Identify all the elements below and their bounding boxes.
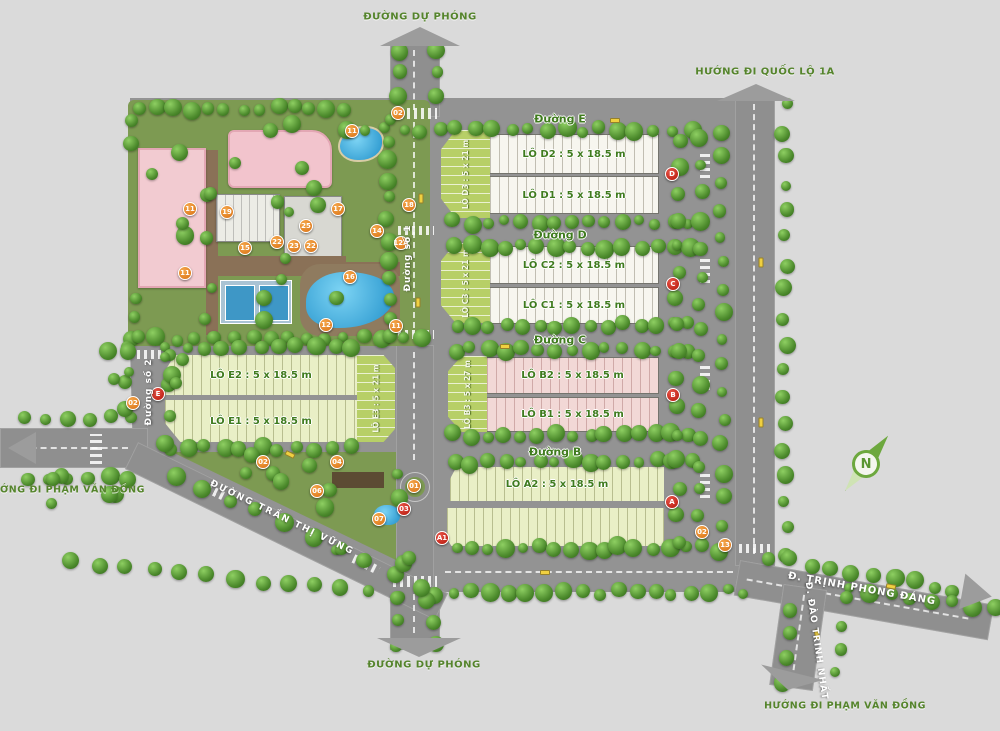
tree-icon xyxy=(118,375,132,389)
tree-icon xyxy=(398,332,409,343)
direction-label-bottom: ĐƯỜNG DỰ PHÓNG xyxy=(367,660,480,671)
tree-icon xyxy=(780,202,795,217)
tree-icon xyxy=(317,100,335,118)
tree-icon xyxy=(99,342,117,360)
block-label: LÔ A2 : 5 x 18.5 m xyxy=(450,467,664,501)
tree-icon xyxy=(635,241,650,256)
tree-icon xyxy=(507,124,519,136)
tree-icon xyxy=(775,390,790,405)
tree-icon xyxy=(778,229,790,241)
tree-icon xyxy=(715,465,733,483)
tree-icon xyxy=(946,595,958,607)
tree-icon xyxy=(774,443,790,459)
block-label: LÔ C3 : 5 x 21 m xyxy=(441,243,490,323)
tree-icon xyxy=(83,413,97,427)
tree-icon xyxy=(718,256,729,267)
car-icon xyxy=(610,118,620,123)
tree-icon xyxy=(648,317,664,333)
tree-icon xyxy=(697,272,708,283)
tree-icon xyxy=(835,643,848,656)
tree-icon xyxy=(329,291,344,306)
tree-icon xyxy=(146,168,158,180)
block-lo-e3: LÔ E3 : 5 x 21 m xyxy=(357,355,395,442)
tree-icon xyxy=(777,466,794,483)
map-marker-c[interactable]: C xyxy=(666,277,680,291)
tree-icon xyxy=(670,317,684,331)
map-marker-07[interactable]: 07 xyxy=(372,512,386,526)
compass: N xyxy=(815,413,916,514)
tree-icon xyxy=(256,576,271,591)
tree-icon xyxy=(176,217,189,230)
tree-icon xyxy=(576,584,590,598)
tree-icon xyxy=(684,586,699,601)
tree-icon xyxy=(463,583,479,599)
map-marker-18[interactable]: 18 xyxy=(402,198,416,212)
tree-icon xyxy=(402,551,416,565)
tree-icon xyxy=(567,431,577,441)
tree-icon xyxy=(101,467,120,486)
tree-icon xyxy=(822,561,838,577)
map-marker-17[interactable]: 17 xyxy=(331,202,345,216)
map-marker-02[interactable]: 02 xyxy=(126,396,140,410)
road-label-duong-e: Đường E xyxy=(534,113,586,126)
tree-icon xyxy=(428,88,443,103)
tree-icon xyxy=(452,320,465,333)
tree-icon xyxy=(271,195,284,208)
tree-icon xyxy=(117,559,132,574)
tree-icon xyxy=(635,319,649,333)
tree-icon xyxy=(183,343,193,353)
tree-icon xyxy=(615,315,629,329)
map-marker-22[interactable]: 22 xyxy=(304,239,318,253)
map-marker-11[interactable]: 11 xyxy=(178,266,192,280)
tree-icon xyxy=(480,453,495,468)
direction-label-top-right: HƯỚNG ĐI QUỐC LỘ 1A xyxy=(695,67,835,78)
block-lo-d1: LÔ D1 : 5 x 18.5 m xyxy=(490,177,658,213)
tree-icon xyxy=(778,416,793,431)
tree-icon xyxy=(805,559,819,573)
block-lo-d3: LÔ D3 : 5 x 21 m xyxy=(441,130,490,218)
map-marker-01[interactable]: 01 xyxy=(407,479,421,493)
tree-icon xyxy=(695,160,705,170)
block-label: LÔ B3 : 5 x 27 m xyxy=(448,356,487,432)
tree-icon xyxy=(782,521,794,533)
tree-icon xyxy=(198,342,211,355)
tree-icon xyxy=(481,321,494,334)
tree-icon xyxy=(634,457,644,467)
road-label-duong-c: Đường C xyxy=(534,334,586,347)
tree-icon xyxy=(461,456,478,473)
tree-icon xyxy=(171,564,187,580)
tree-icon xyxy=(866,568,881,583)
tree-icon xyxy=(783,603,797,617)
tree-icon xyxy=(276,274,287,285)
map-marker-12[interactable]: 12 xyxy=(319,318,333,332)
block-lo-b3: LÔ B3 : 5 x 27 m xyxy=(448,356,487,432)
site-plan-map: LÔ D2 : 5 x 18.5 mLÔ D1 : 5 x 18.5 mLÔ C… xyxy=(0,0,1000,731)
block-label: LÔ E1 : 5 x 18.5 m xyxy=(165,400,357,442)
tree-icon xyxy=(599,342,609,352)
tree-icon xyxy=(481,239,498,256)
tree-icon xyxy=(449,588,459,598)
tree-icon xyxy=(384,293,397,306)
tree-icon xyxy=(501,585,518,602)
tree-icon xyxy=(481,340,499,358)
tree-icon xyxy=(672,430,683,441)
tree-icon xyxy=(778,148,794,164)
tree-icon xyxy=(483,218,494,229)
tree-icon xyxy=(148,562,162,576)
tree-icon xyxy=(780,259,795,274)
tree-icon xyxy=(18,411,31,424)
tree-icon xyxy=(271,98,287,114)
tree-icon xyxy=(326,441,339,454)
map-marker-22[interactable]: 22 xyxy=(270,235,284,249)
tree-icon xyxy=(649,584,664,599)
map-marker-25[interactable]: 25 xyxy=(299,219,313,233)
map-marker-d[interactable]: D xyxy=(665,167,679,181)
tree-icon xyxy=(447,120,462,135)
map-marker-a[interactable]: A xyxy=(665,495,679,509)
road-quoc-lo-1a xyxy=(735,96,775,566)
tree-icon xyxy=(762,552,775,565)
block-label: LÔ B2 : 5 x 18.5 m xyxy=(487,358,658,393)
map-marker-03[interactable]: 03 xyxy=(397,502,411,516)
road-label-duong-so-2: Đường số 2 xyxy=(144,358,154,425)
tree-icon xyxy=(108,373,120,385)
tree-icon xyxy=(337,103,351,117)
tree-icon xyxy=(647,125,659,137)
tree-icon xyxy=(712,435,728,451)
tree-icon xyxy=(256,290,272,306)
tree-icon xyxy=(667,290,683,306)
tree-icon xyxy=(62,552,79,569)
direction-arrow-left-icon xyxy=(8,432,36,464)
block-label: LÔ D3 : 5 x 21 m xyxy=(441,130,490,218)
tree-icon xyxy=(665,589,677,601)
block-label: LÔ E2 : 5 x 18.5 m xyxy=(165,355,357,395)
tree-icon xyxy=(382,271,396,285)
tree-icon xyxy=(723,584,734,595)
tree-icon xyxy=(280,575,298,593)
tree-icon xyxy=(40,414,51,425)
tree-icon xyxy=(217,103,230,116)
tree-icon xyxy=(60,411,76,427)
map-marker-16[interactable]: 16 xyxy=(343,270,357,284)
tree-icon xyxy=(777,363,790,376)
block-lo-e1: LÔ E1 : 5 x 18.5 m xyxy=(165,400,357,442)
tree-icon xyxy=(738,589,748,599)
tree-icon xyxy=(532,538,547,553)
car-icon xyxy=(500,344,510,349)
map-marker-02[interactable]: 02 xyxy=(695,525,709,539)
map-marker-14[interactable]: 14 xyxy=(370,224,384,238)
tree-icon xyxy=(673,134,688,149)
car-icon xyxy=(759,258,764,268)
tree-icon xyxy=(357,329,371,343)
map-marker-23[interactable]: 23 xyxy=(287,239,301,253)
tree-icon xyxy=(199,313,211,325)
tree-icon xyxy=(595,426,611,442)
tree-icon xyxy=(781,550,798,567)
tree-icon xyxy=(255,311,273,329)
tree-icon xyxy=(516,584,534,602)
tree-icon xyxy=(226,570,245,589)
map-marker-04[interactable]: 04 xyxy=(330,455,344,469)
tree-icon xyxy=(776,313,789,326)
tree-icon xyxy=(180,439,198,457)
direction-arrow-up-icon xyxy=(380,27,460,46)
tree-icon xyxy=(695,184,710,199)
map-marker-02[interactable]: 02 xyxy=(256,455,270,469)
direction-arrow-up-icon xyxy=(717,84,795,101)
tree-icon xyxy=(378,150,397,169)
tree-icon xyxy=(384,191,395,202)
tree-icon xyxy=(649,219,660,230)
tree-icon xyxy=(691,509,704,522)
tree-icon xyxy=(307,337,325,355)
tree-icon xyxy=(202,102,215,115)
tree-icon xyxy=(775,279,792,296)
tree-icon xyxy=(380,252,398,270)
car-icon xyxy=(416,298,421,308)
tree-icon xyxy=(836,621,847,632)
tree-icon xyxy=(577,127,588,138)
block-lo-b2: LÔ B2 : 5 x 18.5 m xyxy=(487,358,658,393)
tree-icon xyxy=(596,455,611,470)
tree-icon xyxy=(413,579,430,596)
compass-north-label: N xyxy=(861,456,872,471)
tree-icon xyxy=(716,520,728,532)
block-label: LÔ B1 : 5 x 18.5 m xyxy=(487,398,658,431)
tree-icon xyxy=(535,584,553,602)
tree-icon xyxy=(518,543,528,553)
tree-icon xyxy=(172,335,183,346)
tree-icon xyxy=(717,334,727,344)
tree-icon xyxy=(671,213,687,229)
tree-icon xyxy=(432,66,444,78)
park-pavilion xyxy=(332,472,384,488)
tree-icon xyxy=(129,311,141,323)
map-marker-15[interactable]: 15 xyxy=(238,241,252,255)
tree-icon xyxy=(200,231,214,245)
tree-icon xyxy=(515,319,531,335)
map-marker-06[interactable]: 06 xyxy=(310,484,324,498)
tree-icon xyxy=(104,409,118,423)
tree-icon xyxy=(522,123,533,134)
tree-icon xyxy=(306,180,322,196)
tree-icon xyxy=(592,120,605,133)
tree-icon xyxy=(306,443,322,459)
tree-icon xyxy=(555,582,573,600)
tree-icon xyxy=(651,239,665,253)
map-marker-02[interactable]: 02 xyxy=(391,106,405,120)
tree-icon xyxy=(500,454,514,468)
direction-label-top: ĐƯỜNG DỰ PHÓNG xyxy=(363,12,476,23)
car-icon xyxy=(419,194,424,204)
tree-icon xyxy=(715,177,727,189)
tree-icon xyxy=(197,439,210,452)
tree-icon xyxy=(360,125,370,135)
tree-icon xyxy=(310,197,326,213)
tree-icon xyxy=(92,558,108,574)
tree-icon xyxy=(715,232,725,242)
tree-icon xyxy=(254,104,265,115)
tree-icon xyxy=(81,472,94,485)
tree-icon xyxy=(501,318,514,331)
tree-icon xyxy=(546,542,561,557)
tree-icon xyxy=(332,579,349,596)
tree-icon xyxy=(413,329,431,347)
tree-icon xyxy=(263,123,278,138)
map-marker-11[interactable]: 11 xyxy=(389,319,403,333)
car-icon xyxy=(540,570,550,575)
tree-icon xyxy=(647,543,660,556)
tree-icon xyxy=(239,105,250,116)
map-marker-19[interactable]: 19 xyxy=(220,205,234,219)
tree-icon xyxy=(229,157,241,169)
tree-icon xyxy=(295,161,309,175)
tree-icon xyxy=(615,214,631,230)
block-lo-b1: LÔ B1 : 5 x 18.5 m xyxy=(487,398,658,431)
tree-icon xyxy=(830,667,841,678)
clubhouse-building xyxy=(228,130,332,188)
tree-icon xyxy=(412,125,426,139)
tree-icon xyxy=(692,376,710,394)
tree-icon xyxy=(535,320,546,331)
tree-icon xyxy=(691,212,710,231)
tree-icon xyxy=(483,120,500,137)
tree-icon xyxy=(694,483,705,494)
tree-icon xyxy=(204,187,217,200)
tree-icon xyxy=(671,187,685,201)
tree-icon xyxy=(529,428,544,443)
tree-icon xyxy=(713,125,730,142)
block-lo-d2: LÔ D2 : 5 x 18.5 m xyxy=(490,135,658,173)
tree-icon xyxy=(585,320,597,332)
tree-icon xyxy=(611,582,627,598)
tree-icon xyxy=(133,102,146,115)
tree-icon xyxy=(164,99,182,117)
tree-icon xyxy=(344,438,359,453)
direction-arrow-right-icon xyxy=(959,574,995,615)
direction-label-bottom-right: HƯỚNG ĐI PHẠM VĂN ĐỒNG xyxy=(764,701,926,712)
tree-icon xyxy=(613,238,631,256)
direction-arrow-down-icon xyxy=(377,638,461,657)
tree-icon xyxy=(465,541,479,555)
tree-icon xyxy=(468,121,484,137)
block-label: LÔ D2 : 5 x 18.5 m xyxy=(490,135,658,173)
tree-icon xyxy=(515,239,526,250)
tree-icon xyxy=(496,539,515,558)
tree-icon xyxy=(630,584,645,599)
tree-icon xyxy=(446,237,462,253)
tree-icon xyxy=(156,435,173,452)
car-icon xyxy=(759,418,764,428)
tree-icon xyxy=(595,240,614,259)
map-marker-a1[interactable]: A1 xyxy=(435,531,449,545)
map-marker-13[interactable]: 13 xyxy=(718,538,732,552)
tree-icon xyxy=(565,215,579,229)
tree-icon xyxy=(563,542,579,558)
direction-label-left: HƯỚNG ĐI PHẠM VĂN ĐỒNG xyxy=(0,485,145,496)
road-label-duong-so-1: Đường số 1 xyxy=(403,224,413,291)
map-marker-b[interactable]: B xyxy=(666,388,680,402)
tree-icon xyxy=(594,589,606,601)
block-lo-c3: LÔ C3 : 5 x 21 m xyxy=(441,243,490,323)
tree-icon xyxy=(567,345,578,356)
tree-icon xyxy=(693,242,708,257)
tree-icon xyxy=(170,377,182,389)
block-label: LÔ D1 : 5 x 18.5 m xyxy=(490,177,658,213)
road-label-duong-d: Đường D xyxy=(533,229,586,242)
tree-icon xyxy=(393,64,408,79)
tree-icon xyxy=(624,539,642,557)
tree-icon xyxy=(713,204,726,217)
tree-icon xyxy=(231,340,246,355)
tree-icon xyxy=(273,473,289,489)
tree-icon xyxy=(700,584,718,602)
tree-icon xyxy=(452,543,462,553)
tree-icon xyxy=(271,339,286,354)
map-marker-11[interactable]: 11 xyxy=(183,202,197,216)
tree-icon xyxy=(563,317,580,334)
tree-icon xyxy=(288,99,302,113)
tree-icon xyxy=(164,410,176,422)
tree-icon xyxy=(464,216,482,234)
tree-icon xyxy=(481,583,500,602)
tree-icon xyxy=(464,317,482,335)
tree-icon xyxy=(363,585,375,597)
tree-icon xyxy=(287,337,303,353)
block-lo-c2: LÔ C2 : 5 x 18.5 m xyxy=(490,247,658,283)
block-lo-e2: LÔ E2 : 5 x 18.5 m xyxy=(165,355,357,395)
tree-icon xyxy=(713,147,730,164)
tree-icon xyxy=(383,136,395,148)
tree-icon xyxy=(693,431,708,446)
block-label: LÔ E3 : 5 x 21 m xyxy=(357,355,395,442)
block-label: LÔ C2 : 5 x 18.5 m xyxy=(490,247,658,283)
tree-icon xyxy=(779,337,796,354)
road-label-duong-b: Đường B xyxy=(529,446,582,459)
tree-icon xyxy=(650,346,660,356)
tree-icon xyxy=(167,467,186,486)
tree-icon xyxy=(46,498,57,509)
tree-icon xyxy=(499,215,509,225)
tree-icon xyxy=(774,126,790,142)
tree-icon xyxy=(463,235,482,254)
tree-icon xyxy=(601,320,616,335)
tree-icon xyxy=(929,582,941,594)
tree-icon xyxy=(463,429,480,446)
tree-icon xyxy=(379,173,397,191)
tree-icon xyxy=(717,284,729,296)
tree-icon xyxy=(198,566,214,582)
tree-icon xyxy=(695,538,709,552)
tree-icon xyxy=(563,240,576,253)
tree-icon xyxy=(322,483,337,498)
map-marker-11[interactable]: 11 xyxy=(345,124,359,138)
tree-icon xyxy=(515,457,525,467)
tree-icon xyxy=(392,469,403,480)
tree-icon xyxy=(123,136,139,152)
tree-icon xyxy=(634,215,644,225)
tree-icon xyxy=(280,253,291,264)
tree-icon xyxy=(625,122,643,140)
tree-icon xyxy=(717,387,727,397)
tree-icon xyxy=(906,571,924,589)
tree-icon xyxy=(781,181,791,191)
